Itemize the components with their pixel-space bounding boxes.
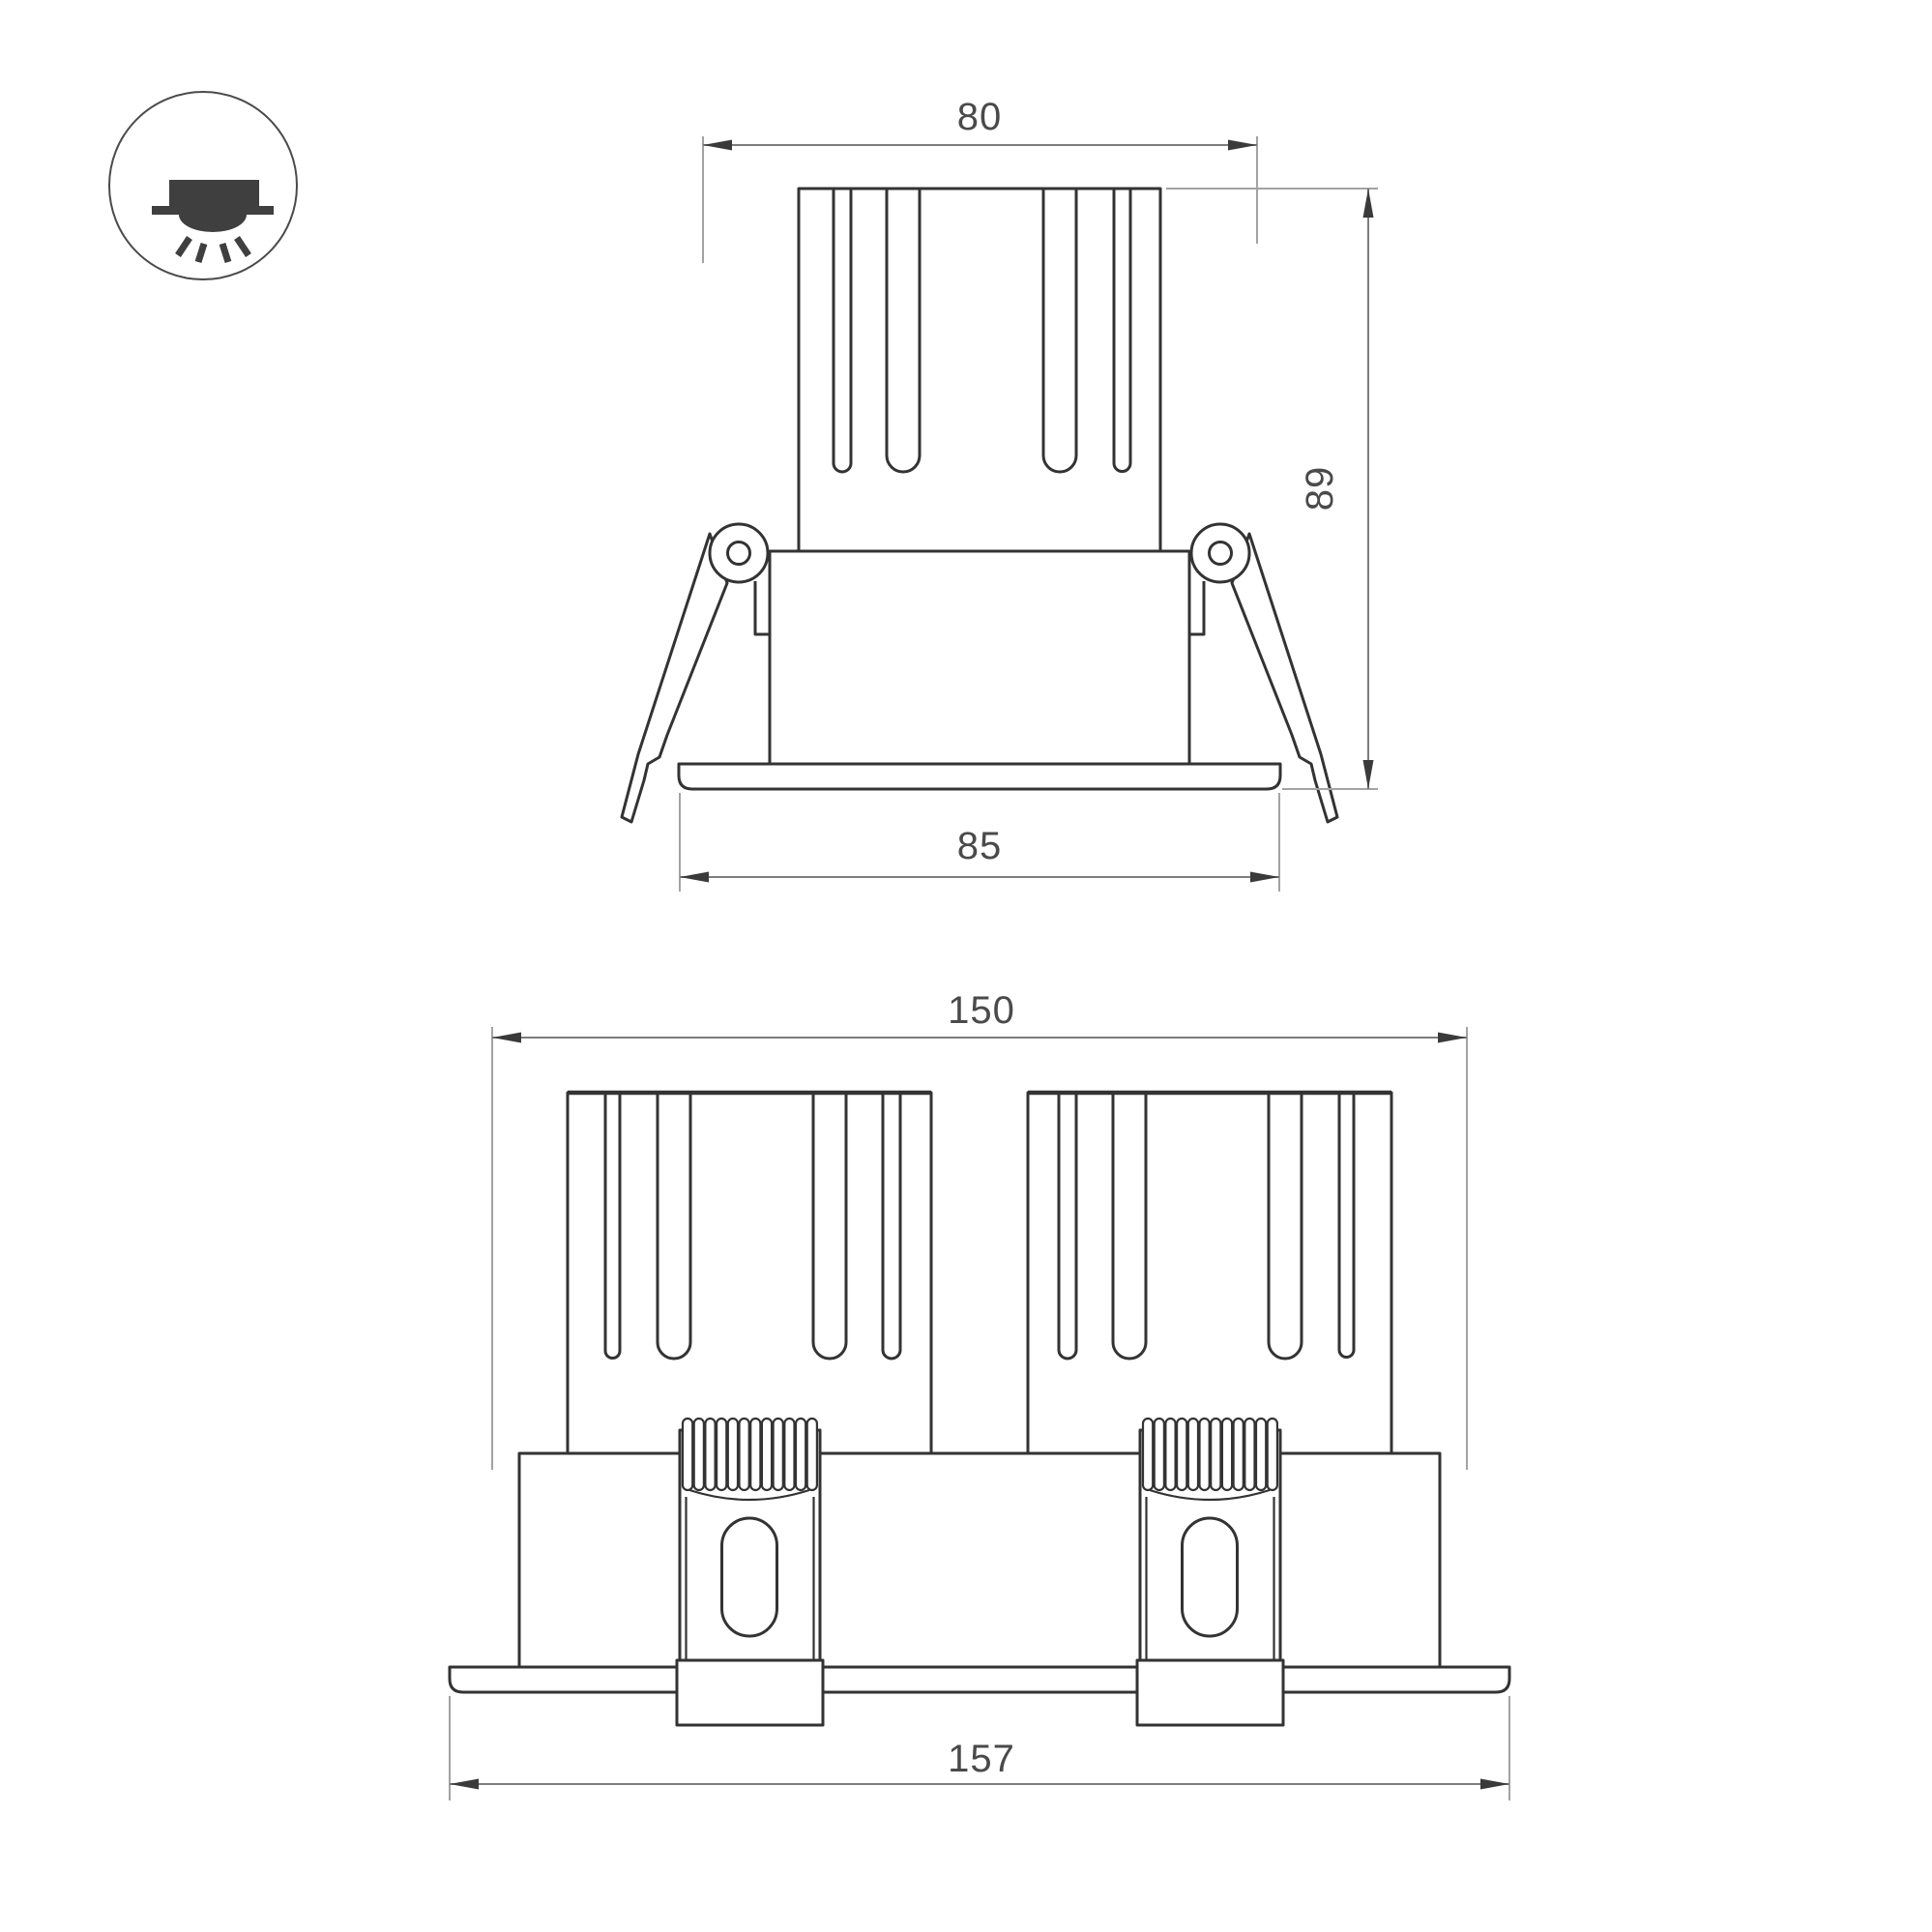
heatsink-right — [1028, 1093, 1391, 1453]
arrowhead — [1363, 189, 1374, 218]
clip-tab — [755, 581, 770, 634]
arrowhead — [1363, 760, 1374, 789]
mounting-body — [770, 551, 1189, 764]
arrowhead — [1438, 1033, 1467, 1043]
single-downlight-front-view: 80 89 85 — [622, 96, 1378, 892]
technical-drawing: 80 89 85 — [0, 0, 1932, 1932]
arrowhead — [450, 1779, 479, 1790]
arrowhead — [1250, 872, 1279, 883]
arrowhead — [1228, 140, 1257, 151]
mounting-clamp-left — [677, 1419, 823, 1725]
icon-lamp-body — [169, 180, 259, 206]
flange — [679, 764, 1280, 789]
heatsink-left — [568, 1093, 931, 1453]
arrowhead — [703, 140, 732, 151]
arrowhead — [492, 1033, 521, 1043]
drawing-page: 80 89 85 — [0, 0, 1932, 1932]
icon-ceiling-flange — [152, 206, 274, 215]
mounting-body — [519, 1453, 1440, 1667]
arrowhead — [680, 872, 709, 883]
dim-80-label: 80 — [957, 96, 1003, 138]
mounting-clamp-right — [1137, 1419, 1283, 1725]
arrowhead — [1480, 1779, 1509, 1790]
clip-pivot — [1191, 524, 1249, 582]
recessed-downlight-icon — [109, 92, 297, 279]
clip-tab — [1189, 581, 1204, 634]
dim-150-label: 150 — [948, 989, 1015, 1032]
dimension-height: 89 — [1166, 189, 1378, 789]
flange — [450, 1667, 1509, 1692]
dim-89-label: 89 — [1299, 466, 1341, 512]
dim-157-label: 157 — [948, 1738, 1015, 1780]
dim-85-label: 85 — [957, 825, 1003, 867]
dimension-flange-width: 157 — [450, 1696, 1509, 1800]
double-downlight-front-view: 150 157 — [450, 989, 1509, 1800]
clip-pivot — [710, 524, 768, 582]
dimension-flange-width: 85 — [680, 793, 1279, 892]
heatsink — [799, 189, 1160, 551]
